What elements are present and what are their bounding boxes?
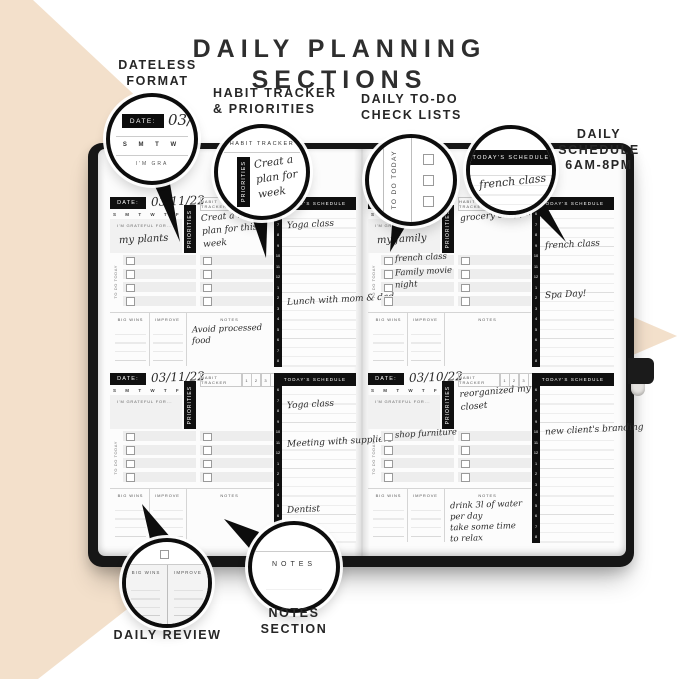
todo-checkbox (461, 270, 470, 279)
time-label: 9 (535, 245, 537, 249)
todo-checkbox (384, 257, 393, 266)
time-label: 12 (534, 276, 538, 280)
time-label: 11 (534, 266, 538, 270)
day-letter: S (113, 212, 116, 217)
improve-lines (153, 326, 183, 364)
time-label: 1 (277, 287, 279, 291)
big-wins-label: BIG WINS (112, 317, 149, 322)
days-row: S M T W (110, 142, 194, 148)
day-letter: M (125, 388, 129, 393)
time-label: 4 (535, 318, 537, 322)
todo-stripe (200, 282, 273, 292)
time-label: 1 (277, 463, 279, 467)
todo-label-text: TO DO TODAY (371, 265, 376, 299)
review-row: BIG WINS IMPROVE NOTES Avoid processedfo… (110, 312, 273, 366)
schedule-entry: Dentist (287, 504, 321, 516)
pen-loop (628, 358, 654, 384)
notes-cell: NOTES (444, 313, 531, 366)
date-label: DATE: (122, 114, 164, 128)
todo-stripe (123, 445, 196, 455)
planner-notebook: DATE: 03/11/22 HABIT TRACKER 1234 SMTWTF… (88, 143, 634, 567)
review-row: BIG WINS IMPROVE NOTES (110, 488, 273, 542)
todo-stripe (381, 472, 454, 482)
todo-label-text: TO DO TODAY (113, 265, 118, 299)
day-letter: F (176, 212, 179, 217)
todo-checkbox (126, 284, 135, 293)
todo-label: TO DO TODAY (368, 431, 378, 485)
day-letter: S (371, 212, 374, 217)
todo-stripe (200, 445, 273, 455)
todo-stripe (200, 431, 273, 441)
time-label: 3 (277, 484, 279, 488)
time-label: 2 (277, 473, 279, 477)
priorities-label: PRIORITIES (187, 210, 193, 248)
priorities-tab: PRIORITIES (184, 205, 196, 253)
time-label: 3 (535, 484, 537, 488)
label-daily-todo: DAILY TO-DO CHECK LISTS (361, 92, 506, 123)
divider (116, 155, 188, 156)
time-label: 7 (277, 224, 279, 228)
todo-item-text: night (395, 279, 418, 290)
note-line: food (192, 334, 273, 348)
improve-label: IMPROVE (408, 493, 444, 498)
tracker-cell: 3 (261, 373, 271, 387)
priorities-label: PRIORITIES (445, 386, 451, 424)
notes-label: NOTES (252, 561, 336, 568)
todo-row (123, 445, 273, 455)
time-label: 8 (535, 234, 537, 238)
grateful-label: I'M GRATEFUL FOR... (375, 399, 440, 404)
label-daily-schedule: DAILY SCHEDULE 6AM-8PM (540, 127, 658, 174)
time-label: 4 (535, 494, 537, 498)
todo-row (123, 296, 273, 306)
column-line (411, 138, 412, 222)
time-label: 6 (277, 515, 279, 519)
time-label: 2 (535, 473, 537, 477)
days-row: SMTWTFS (371, 388, 449, 393)
todo-checkbox (384, 297, 393, 306)
time-label: 6 (535, 515, 537, 519)
todo-row (123, 255, 273, 265)
priorities-label: PRIORITIES (445, 210, 451, 248)
callout-daily-review: BIG WINS IMPROVE (122, 538, 212, 628)
day-letter: F (434, 388, 437, 393)
time-label: 8 (535, 410, 537, 414)
day-letter: F (176, 388, 179, 393)
callout-todo-list: TO DO TODAY (365, 134, 457, 226)
todo-checkbox (384, 473, 393, 482)
todo-grid (123, 431, 273, 485)
big-wins-cell: BIG WINS (112, 489, 150, 542)
time-label: 11 (276, 266, 280, 270)
time-label: 8 (535, 536, 537, 540)
todo-stripe (200, 458, 273, 468)
time-label: 7 (535, 350, 537, 354)
label-line: DAILY TO-DO (361, 92, 506, 108)
todo-label-text: TO DO TODAY (391, 150, 398, 209)
date-value: 03/11/22 (151, 193, 205, 209)
notes-label: NOTES (186, 493, 273, 498)
daily-section-bottom-right: DATE: 03/10/22 HABIT TRACKER 1234 SMTWTF… (368, 373, 614, 543)
priorities-tab: PRIORITIES (184, 381, 196, 429)
time-label: 2 (277, 297, 279, 301)
day-letter: M (383, 388, 387, 393)
notes-text: drink 3l of waterper daytake some timeto… (450, 500, 531, 544)
schedule-header: TODAY'S SCHEDULE (274, 373, 356, 386)
todo-stripe (458, 255, 531, 265)
improve-lines (153, 502, 183, 540)
notes-label: NOTES (186, 317, 273, 322)
time-label: 8 (535, 360, 537, 364)
todo-label: TO DO TODAY (368, 255, 378, 309)
todo-checkbox (203, 473, 212, 482)
time-label: 8 (277, 410, 279, 414)
pen-loop-elastic (631, 384, 645, 396)
todo-stripe (458, 458, 531, 468)
time-label: 10 (534, 431, 538, 435)
improve-cell: IMPROVE (150, 313, 187, 366)
todo-checkbox (126, 460, 135, 469)
todo-row (123, 431, 273, 441)
todo-stripe (123, 282, 196, 292)
ruled-lines (266, 581, 322, 597)
todo-grid: shop furniture (381, 431, 531, 485)
days-row: SMTWTFS (113, 388, 191, 393)
day-letter: S (113, 388, 116, 393)
time-label: 5 (277, 505, 279, 509)
priorities-tab: PRIORITIES (442, 381, 454, 429)
time-label: 5 (535, 329, 537, 333)
grateful-label: I'M GRATEFUL FOR... (117, 223, 182, 228)
notes-text: Avoid processedfood (192, 324, 273, 346)
habit-tracker-label: HABIT TRACKER (200, 373, 242, 387)
todo-label: TO DO TODAY (110, 255, 120, 309)
label-line: FORMAT (100, 74, 215, 90)
todo-stripe (458, 296, 531, 306)
improve-cell: IMPROVE (150, 489, 187, 542)
time-label: 6 (535, 389, 537, 393)
priorities-tab: PRIORITIES (237, 157, 250, 207)
todo-checkbox (126, 433, 135, 442)
todo-checkbox (203, 284, 212, 293)
schedule-entries: french classSpa Day! (540, 210, 614, 367)
column-line (383, 138, 384, 222)
time-label: 4 (277, 318, 279, 322)
label-line: DAILY REVIEW (90, 628, 245, 644)
notes-cell: NOTES Avoid processedfood (186, 313, 273, 366)
label-habit-tracker: HABIT TRACKER & PRIORITIES (213, 86, 353, 117)
time-label: 9 (277, 421, 279, 425)
big-wins-lines (115, 326, 146, 364)
time-label: 8 (277, 234, 279, 238)
label-dateless-format: DATELESS FORMAT (100, 58, 215, 89)
big-wins-label: BIG WINS (370, 493, 407, 498)
label-daily-review: DAILY REVIEW (90, 628, 245, 644)
time-label: 3 (535, 308, 537, 312)
todo-checkbox (126, 270, 135, 279)
todo-row (123, 472, 273, 482)
todo-item-text: shop furniture (395, 427, 457, 440)
checkbox (160, 550, 169, 559)
priorities-text: reorganized mycloset (459, 383, 531, 415)
time-label: 7 (535, 224, 537, 228)
day-letter: T (138, 212, 141, 217)
todo-stripe (123, 458, 196, 468)
date-label: DATE: (110, 197, 146, 209)
time-label: 12 (276, 452, 280, 456)
grateful-value: my plants (119, 233, 169, 247)
todo-grid (123, 255, 273, 309)
todo-checkbox (384, 433, 393, 442)
time-strip: 678910111212345678 (274, 210, 282, 367)
day-letter: T (164, 388, 167, 393)
todo-row: night (381, 282, 531, 292)
schedule-entry: Spa Day! (545, 289, 587, 301)
time-label: 10 (276, 431, 280, 435)
todo-checkbox (461, 473, 470, 482)
todo-checkbox (203, 446, 212, 455)
label-line: HABIT TRACKER (213, 86, 353, 102)
time-label: 12 (534, 452, 538, 456)
time-strip: 678910111212345678 (532, 210, 540, 367)
day-letter: T (396, 388, 399, 393)
time-label: 8 (277, 360, 279, 364)
review-row: BIG WINS IMPROVE NOTES (368, 312, 531, 366)
day-letter: W (150, 212, 154, 217)
improve-lines (411, 502, 441, 540)
daily-section-bottom-left: DATE: 03/11/22 HABIT TRACKER 1234 SMTWTF… (110, 373, 356, 543)
todo-checkbox (126, 446, 135, 455)
checkbox (423, 196, 434, 207)
todo-checkbox (461, 433, 470, 442)
todo-stripe (458, 282, 531, 292)
day-letter: T (164, 212, 167, 217)
label-line: & PRIORITIES (213, 102, 353, 118)
todo-checkbox (126, 473, 135, 482)
todo-row: shop furniture (381, 431, 531, 441)
todo-checkbox (203, 297, 212, 306)
day-letter: W (150, 388, 154, 393)
grateful-value: my family (377, 233, 427, 247)
todo-label-text: TO DO TODAY (113, 441, 118, 475)
daily-section-top-left: DATE: 03/11/22 HABIT TRACKER 1234 SMTWTF… (110, 197, 356, 367)
improve-cell: IMPROVE (408, 489, 445, 542)
time-strip: 678910111212345678 (274, 386, 282, 543)
date-value: 03/10/22 (409, 369, 463, 385)
checkbox (423, 175, 434, 186)
notes-label: NOTES (444, 493, 531, 498)
date-value: 03/ (168, 111, 192, 129)
todo-label: TO DO TODAY (391, 138, 398, 222)
big-wins-cell: BIG WINS (112, 313, 150, 366)
big-wins-lines (115, 502, 146, 540)
callout-dateless-format: DATE: 03/ S M T W I'M GRA (106, 93, 198, 185)
schedule-entry: Yoga class (287, 399, 335, 411)
day-letter: T (422, 388, 425, 393)
improve-cell: IMPROVE (408, 313, 445, 366)
time-label: 6 (277, 389, 279, 393)
todo-row: french class (381, 255, 531, 265)
column-line (167, 565, 168, 624)
schedule-entries: new client's branding (540, 386, 614, 543)
note-line: to relax (450, 532, 531, 546)
label-line: DAILY (540, 127, 658, 143)
todo-label: TO DO TODAY (110, 431, 120, 485)
checkbox (423, 154, 434, 165)
label-line: SCHEDULE (540, 143, 658, 159)
time-label: 6 (277, 339, 279, 343)
todo-stripe (381, 296, 454, 306)
day-letter: M (125, 212, 129, 217)
label-notes-section: NOTES SECTION (248, 606, 340, 637)
todo-checkbox (384, 446, 393, 455)
label-line: SECTION (248, 622, 340, 638)
schedule-entries: Yoga classMeeting with suppliersDentist (282, 386, 356, 543)
todo-stripe: shop furniture (381, 431, 454, 441)
todo-stripe (381, 458, 454, 468)
big-wins-label: BIG WINS (129, 570, 163, 575)
todo-stripe: french class (381, 255, 454, 265)
todo-checkbox (384, 460, 393, 469)
todo-stripe (200, 296, 273, 306)
habit-tracker-label: HABIT TRACKER (218, 141, 306, 147)
time-label: 1 (535, 463, 537, 467)
time-label: 7 (277, 350, 279, 354)
time-label: 6 (535, 213, 537, 217)
time-label: 11 (276, 442, 280, 446)
time-label: 2 (535, 297, 537, 301)
grateful-box: I'M GRATEFUL FOR... my plants (110, 219, 182, 253)
day-letter: S (371, 388, 374, 393)
todo-stripe (123, 255, 196, 265)
product-infographic: DAILY PLANNING SECTIONS DATELESS FORMAT … (0, 0, 679, 679)
todo-checkbox (461, 284, 470, 293)
todo-row (381, 445, 531, 455)
big-wins-label: BIG WINS (370, 317, 407, 322)
improve-label: IMPROVE (150, 493, 186, 498)
time-label: 7 (535, 400, 537, 404)
todo-checkbox (203, 433, 212, 442)
big-wins-cell: BIG WINS (370, 313, 408, 366)
schedule-entry: new client's branding (545, 422, 644, 437)
time-strip: 678910111212345678 (532, 386, 540, 543)
time-label: 10 (534, 255, 538, 259)
todo-row (123, 269, 273, 279)
time-label: 4 (277, 494, 279, 498)
callout-notes-section: NOTES (248, 521, 340, 613)
handwriting: Creat a plan for week (253, 152, 301, 202)
improve-lines (411, 326, 441, 364)
day-letter: W (408, 388, 412, 393)
todo-checkbox (461, 297, 470, 306)
divider (116, 136, 188, 137)
improve-label: IMPROVE (150, 317, 186, 322)
time-label: 5 (535, 505, 537, 509)
divider (252, 551, 336, 552)
schedule-entries: Yoga classLunch with mom & dad (282, 210, 356, 367)
todo-checkbox (461, 446, 470, 455)
big-wins-lines (373, 326, 404, 364)
time-label: 6 (535, 339, 537, 343)
todo-checkbox (461, 460, 470, 469)
time-label: 9 (535, 421, 537, 425)
time-label: 11 (534, 442, 538, 446)
habit-tracker-label: HABIT TRACKER (458, 373, 500, 387)
todo-label-text: TO DO TODAY (371, 441, 376, 475)
time-label: 7 (535, 526, 537, 530)
todo-checkbox (461, 257, 470, 266)
label-line: CHECK LISTS (361, 108, 506, 124)
improve-label: IMPROVE (171, 570, 205, 575)
big-wins-label: BIG WINS (112, 493, 149, 498)
callout-habit-tracker: HABIT TRACKER PRIORITIES Creat a plan fo… (214, 124, 310, 220)
time-label: 3 (277, 308, 279, 312)
ruled-lines (131, 583, 160, 617)
big-wins-cell: BIG WINS (370, 489, 408, 542)
todo-checkbox (203, 270, 212, 279)
review-row: BIG WINS IMPROVE NOTES drink 3l of water… (368, 488, 531, 542)
todo-checkbox (126, 257, 135, 266)
todo-stripe (123, 472, 196, 482)
priorities-label: PRIORITIES (187, 386, 193, 424)
grateful-box: I'M GRATEFUL FOR... (368, 395, 440, 429)
todo-row (381, 296, 531, 306)
label-line: DATELESS (100, 58, 215, 74)
date-label: DATE: (110, 373, 146, 385)
todo-grid: french classFamily movienight (381, 255, 531, 309)
todo-stripe: night (381, 282, 454, 292)
label-line: NOTES (248, 606, 340, 622)
notes-label: NOTES (444, 317, 531, 322)
notes-cell: NOTES drink 3l of waterper daytake some … (444, 489, 531, 542)
grateful-label: I'M GRATEFUL FOR... (117, 399, 182, 404)
todo-stripe (123, 296, 196, 306)
ruled-lines (174, 583, 203, 617)
todo-stripe (381, 445, 454, 455)
todo-row (123, 282, 273, 292)
date-label: DATE: (368, 373, 404, 385)
todo-stripe (458, 269, 531, 279)
todo-item-text: Family movie (395, 265, 453, 278)
time-label: 5 (277, 329, 279, 333)
todo-item-text: french class (395, 252, 447, 265)
todo-stripe (200, 255, 273, 265)
big-wins-lines (373, 502, 404, 540)
priorities-label: PRIORITIES (241, 161, 247, 202)
time-label: 10 (276, 255, 280, 259)
grateful-label: I'M GRA (110, 161, 194, 167)
schedule-entry: Yoga class (287, 219, 335, 231)
todo-checkbox (203, 257, 212, 266)
todo-stripe (458, 445, 531, 455)
todo-row: Family movie (381, 269, 531, 279)
todo-checkbox (203, 460, 212, 469)
tracker-cell: 1 (242, 373, 252, 387)
todo-stripe (458, 431, 531, 441)
schedule-entry: french class (545, 239, 600, 252)
todo-row (381, 472, 531, 482)
date-value: 03/11/22 (151, 369, 205, 385)
tracker-cell: 2 (251, 373, 261, 387)
todo-stripe (200, 472, 273, 482)
todo-stripe (123, 431, 196, 441)
day-letter: T (138, 388, 141, 393)
todo-checkbox (384, 284, 393, 293)
time-label: 1 (535, 287, 537, 291)
todo-stripe (200, 269, 273, 279)
todo-stripe (123, 269, 196, 279)
todo-stripe: Family movie (381, 269, 454, 279)
